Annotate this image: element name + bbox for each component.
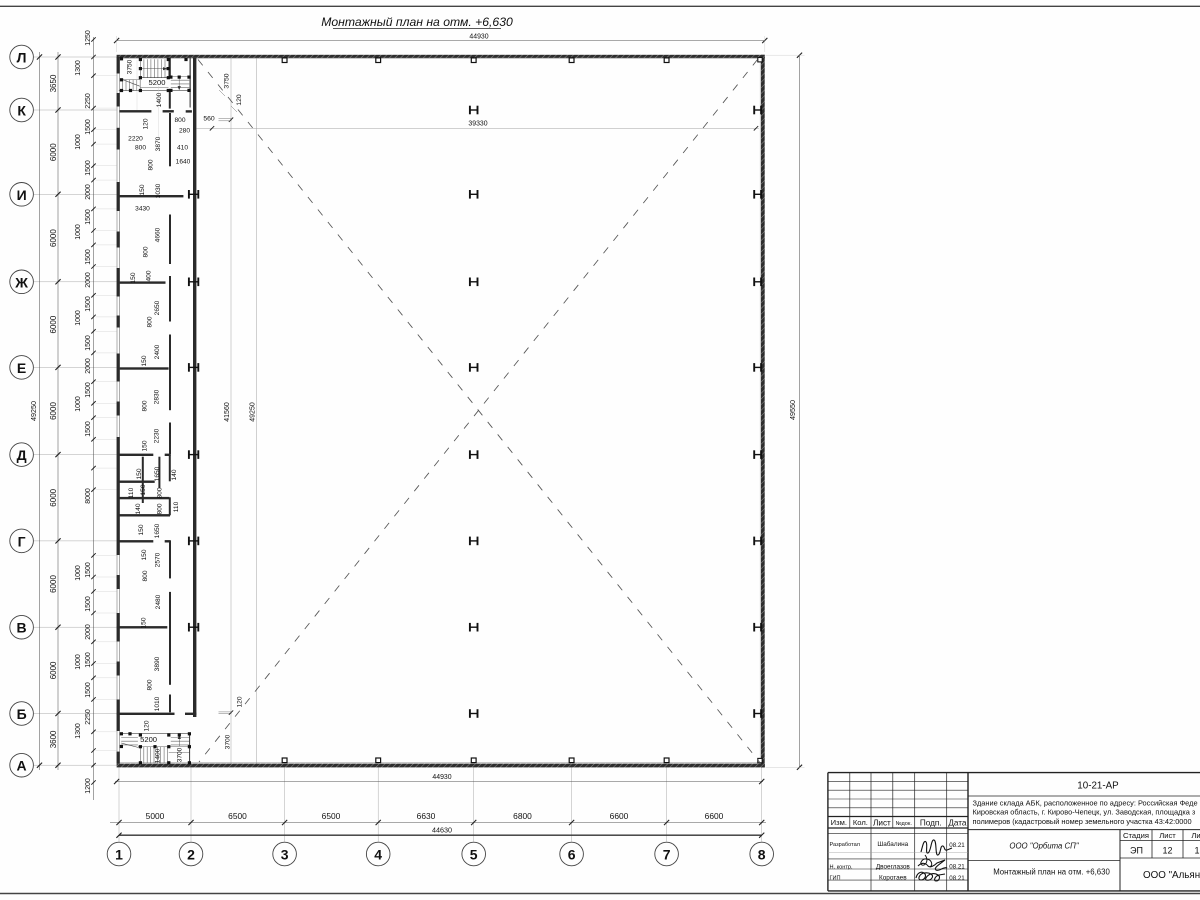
svg-text:8: 8	[758, 847, 766, 863]
svg-text:150: 150	[139, 184, 146, 195]
svg-text:2: 2	[187, 847, 195, 863]
svg-text:Разработал: Разработал	[830, 842, 860, 848]
svg-text:2570: 2570	[155, 552, 162, 567]
svg-text:1000: 1000	[75, 224, 82, 240]
svg-text:800: 800	[157, 487, 164, 498]
svg-text:49250: 49250	[250, 402, 257, 422]
svg-text:1500: 1500	[85, 421, 92, 437]
svg-text:44630: 44630	[432, 826, 452, 835]
svg-text:Монтажный план на отм. +6,630: Монтажный план на отм. +6,630	[321, 15, 513, 29]
svg-text:7: 7	[663, 847, 671, 863]
svg-text:ЭП: ЭП	[1130, 846, 1143, 856]
svg-text:3700: 3700	[176, 747, 183, 762]
svg-text:6000: 6000	[49, 661, 58, 679]
svg-text:1030: 1030	[155, 183, 162, 198]
svg-text:1010: 1010	[154, 696, 161, 711]
svg-text:800: 800	[142, 400, 149, 411]
svg-text:Д: Д	[17, 447, 27, 463]
svg-text:08.21: 08.21	[949, 875, 965, 882]
svg-text:49250: 49250	[29, 401, 38, 421]
svg-text:1000: 1000	[75, 565, 82, 581]
svg-text:Изм.: Изм.	[831, 818, 847, 827]
svg-text:Н. контр.: Н. контр.	[830, 864, 854, 870]
svg-text:К: К	[17, 103, 26, 119]
svg-text:800: 800	[147, 316, 154, 327]
svg-text:Кол.: Кол.	[853, 818, 868, 827]
svg-text:120: 120	[237, 696, 244, 707]
svg-text:6600: 6600	[610, 811, 629, 821]
svg-text:44930: 44930	[432, 774, 451, 781]
svg-text:120: 120	[144, 720, 151, 731]
svg-text:Л: Л	[17, 50, 27, 66]
svg-text:Двоеглазов: Двоеглазов	[876, 863, 911, 870]
svg-text:Г: Г	[18, 533, 26, 549]
svg-text:150: 150	[141, 617, 148, 628]
svg-text:3650: 3650	[49, 74, 58, 92]
svg-text:1200: 1200	[85, 778, 92, 794]
svg-text:2000: 2000	[85, 272, 92, 288]
svg-text:6: 6	[568, 847, 576, 863]
svg-text:410: 410	[177, 145, 188, 152]
svg-text:12: 12	[1162, 846, 1172, 856]
svg-text:1250: 1250	[85, 30, 92, 46]
svg-text:140: 140	[171, 469, 178, 480]
svg-text:Б: Б	[17, 706, 27, 722]
svg-text:150: 150	[140, 484, 147, 495]
svg-text:800: 800	[147, 679, 154, 690]
svg-text:6000: 6000	[49, 402, 58, 420]
svg-text:1300: 1300	[75, 723, 82, 739]
svg-text:6500: 6500	[322, 811, 341, 821]
svg-text:1500: 1500	[85, 682, 92, 698]
svg-text:8000: 8000	[85, 488, 92, 504]
svg-text:Стадия: Стадия	[1123, 831, 1149, 840]
svg-text:И: И	[17, 187, 27, 203]
svg-text:А: А	[17, 758, 27, 774]
svg-text:1500: 1500	[85, 596, 92, 612]
svg-text:1500: 1500	[85, 652, 92, 668]
svg-text:Шабалина: Шабалина	[877, 840, 908, 848]
svg-text:6500: 6500	[228, 811, 247, 821]
svg-text:120: 120	[143, 118, 150, 129]
svg-text:150: 150	[142, 440, 149, 451]
svg-text:Лист: Лист	[873, 818, 891, 827]
svg-text:полимеров (кадастровый номер з: полимеров (кадастровый номер земельного …	[973, 817, 1192, 826]
svg-text:1400: 1400	[155, 748, 162, 763]
svg-text:140: 140	[135, 503, 142, 514]
svg-text:3430: 3430	[135, 206, 150, 213]
svg-text:1650: 1650	[154, 523, 161, 538]
svg-text:2220: 2220	[128, 136, 143, 143]
svg-text:6000: 6000	[49, 229, 58, 247]
svg-text:49550: 49550	[788, 400, 797, 420]
svg-text:Подп.: Подп.	[920, 818, 942, 827]
svg-text:560: 560	[203, 116, 215, 123]
svg-text:Кировская область, г. Кирово-Ч: Кировская область, г. Кирово-Чепецк, ул.…	[973, 808, 1196, 817]
svg-text:3: 3	[281, 847, 289, 863]
svg-text:ГИП: ГИП	[830, 876, 841, 882]
svg-text:800: 800	[143, 246, 150, 257]
svg-text:Здание склада АБК, расположенн: Здание склада АБК, расположенное по адре…	[973, 798, 1198, 807]
svg-text:6600: 6600	[705, 811, 724, 821]
svg-text:1500: 1500	[85, 249, 92, 265]
svg-text:1500: 1500	[85, 209, 92, 225]
svg-text:3870: 3870	[155, 136, 162, 151]
svg-text:4: 4	[374, 847, 382, 863]
svg-text:2000: 2000	[85, 624, 92, 640]
svg-text:6000: 6000	[49, 575, 58, 593]
svg-text:2250: 2250	[85, 93, 92, 109]
svg-text:Е: Е	[17, 360, 26, 376]
svg-text:Монтажный план на отм. +6,630: Монтажный план на отм. +6,630	[993, 868, 1110, 877]
svg-text:1500: 1500	[85, 335, 92, 351]
svg-text:2000: 2000	[85, 184, 92, 200]
svg-text:2250: 2250	[85, 709, 92, 725]
svg-text:6000: 6000	[49, 488, 58, 506]
svg-text:2830: 2830	[154, 389, 161, 404]
svg-text:800: 800	[157, 503, 164, 514]
svg-text:800: 800	[148, 159, 155, 170]
svg-text:10-21-АР: 10-21-АР	[1077, 780, 1119, 791]
svg-text:5200: 5200	[140, 735, 157, 744]
svg-text:280: 280	[179, 128, 190, 135]
svg-text:110: 110	[128, 487, 135, 498]
svg-text:150: 150	[141, 355, 148, 366]
svg-text:1500: 1500	[85, 382, 92, 398]
svg-text:ООО "Альянс: ООО "Альянс	[1143, 870, 1200, 881]
svg-text:6000: 6000	[49, 143, 58, 161]
svg-text:2230: 2230	[154, 428, 161, 443]
svg-text:2650: 2650	[154, 300, 161, 315]
svg-text:150: 150	[138, 524, 145, 535]
svg-text:120: 120	[236, 94, 243, 106]
svg-text:3700: 3700	[224, 734, 231, 749]
svg-text:800: 800	[135, 145, 146, 152]
svg-text:1500: 1500	[85, 296, 92, 312]
svg-text:1000: 1000	[75, 396, 82, 412]
svg-text:1400: 1400	[156, 92, 163, 107]
svg-text:6800: 6800	[513, 811, 532, 821]
svg-text:2000: 2000	[85, 358, 92, 374]
svg-text:3750: 3750	[127, 59, 134, 74]
svg-text:6000: 6000	[49, 315, 58, 333]
svg-text:1500: 1500	[85, 160, 92, 176]
svg-text:Лист: Лист	[1159, 831, 1176, 840]
svg-text:150: 150	[130, 272, 137, 283]
svg-text:6630: 6630	[417, 811, 436, 821]
svg-text:5: 5	[470, 847, 478, 863]
svg-text:4660: 4660	[155, 227, 162, 242]
svg-text:ООО "Орбита СП": ООО "Орбита СП"	[1009, 842, 1079, 851]
svg-text:№док.: №док.	[896, 821, 913, 827]
svg-text:2400: 2400	[154, 344, 161, 359]
svg-text:2480: 2480	[155, 594, 162, 609]
svg-text:1300: 1300	[75, 60, 82, 76]
svg-text:800: 800	[174, 117, 185, 124]
svg-text:110: 110	[173, 501, 180, 512]
svg-text:150: 150	[136, 468, 143, 479]
svg-text:Ж: Ж	[14, 274, 28, 290]
svg-text:1500: 1500	[85, 562, 92, 578]
svg-text:39330: 39330	[468, 121, 487, 128]
svg-text:Коротаев: Коротаев	[879, 875, 907, 882]
svg-text:400: 400	[146, 270, 153, 281]
svg-text:1650: 1650	[154, 466, 161, 481]
svg-text:1000: 1000	[75, 134, 82, 150]
svg-text:1000: 1000	[75, 310, 82, 326]
svg-text:3750: 3750	[224, 73, 231, 88]
svg-text:44930: 44930	[469, 34, 488, 41]
svg-text:5000: 5000	[146, 811, 165, 821]
svg-text:Ли: Ли	[1191, 831, 1200, 840]
svg-text:5200: 5200	[149, 78, 166, 87]
svg-text:08.21: 08.21	[949, 864, 965, 871]
svg-text:800: 800	[142, 570, 149, 581]
svg-text:3890: 3890	[154, 656, 161, 671]
svg-text:150: 150	[141, 549, 148, 560]
svg-text:1: 1	[115, 847, 123, 863]
svg-text:41560: 41560	[224, 402, 231, 422]
svg-text:В: В	[17, 620, 27, 636]
svg-text:1640: 1640	[176, 159, 191, 166]
svg-text:1: 1	[1194, 846, 1199, 856]
svg-text:1000: 1000	[75, 654, 82, 670]
svg-text:Дата: Дата	[948, 818, 967, 827]
svg-text:1500: 1500	[85, 119, 92, 135]
svg-text:3600: 3600	[49, 730, 58, 748]
